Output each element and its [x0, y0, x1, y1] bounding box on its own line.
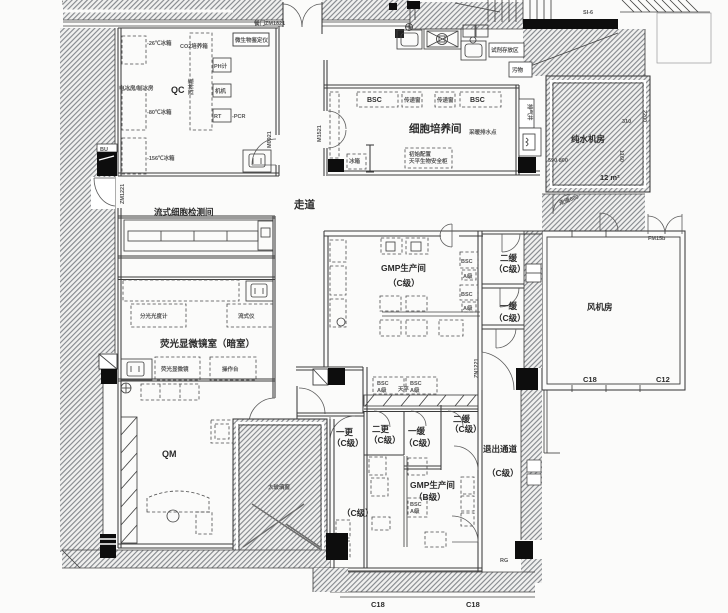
- svg-text:FM15b: FM15b: [648, 236, 666, 242]
- svg-text:GMP生产间: GMP生产间: [381, 263, 426, 273]
- svg-text:传递窗: 传递窗: [436, 96, 454, 104]
- svg-text:传递窗: 传递窗: [403, 96, 421, 104]
- svg-text:A级: A级: [463, 304, 473, 312]
- svg-text:（C级）: （C级）: [388, 278, 420, 288]
- svg-text:-156℃冰箱: -156℃冰箱: [147, 154, 175, 162]
- svg-text:（C级）: （C级）: [494, 313, 526, 323]
- svg-text:RG: RG: [500, 558, 508, 564]
- svg-text:（C级）: （C级）: [487, 468, 519, 478]
- svg-text:流式细胞检测间: 流式细胞检测间: [154, 207, 214, 217]
- svg-text:初始配置: 初始配置: [409, 150, 432, 158]
- svg-text:荧光显微镜室（暗室）: 荧光显微镜室（暗室）: [160, 338, 255, 350]
- svg-text:QM: QM: [162, 449, 177, 459]
- svg-text:纯水机房: 纯水机房: [571, 134, 605, 144]
- svg-text:流式仪: 流式仪: [238, 312, 255, 320]
- svg-text:A级: A级: [410, 386, 420, 394]
- svg-text:2200: 2200: [641, 110, 647, 122]
- svg-text:冰箱: 冰箱: [349, 157, 361, 165]
- svg-text:C18: C18: [466, 600, 480, 609]
- svg-text:A级: A级: [463, 272, 473, 280]
- svg-text:BSC: BSC: [470, 97, 485, 104]
- svg-text:走道: 走道: [293, 198, 315, 211]
- svg-text:天平生物安全柜: 天平生物安全柜: [409, 157, 448, 165]
- svg-text:PH计: PH计: [214, 62, 228, 70]
- svg-text:A级: A级: [410, 507, 420, 515]
- svg-text:（C级）: （C级）: [332, 438, 364, 448]
- svg-text:微生物鉴定仪: 微生物鉴定仪: [234, 36, 269, 44]
- svg-text:操作台: 操作台: [222, 365, 239, 373]
- svg-text:试剂存放区: 试剂存放区: [491, 46, 519, 54]
- svg-text:采暖排水点: 采暖排水点: [468, 128, 497, 136]
- svg-text:1160: 1160: [618, 150, 624, 162]
- svg-text:SI-6: SI-6: [583, 10, 593, 16]
- svg-text:RT: RT: [214, 114, 222, 120]
- svg-text:（C级）: （C级）: [450, 424, 482, 434]
- svg-text:ZM1221: ZM1221: [120, 184, 126, 204]
- svg-text:GMP生产间: GMP生产间: [410, 480, 455, 490]
- svg-text:M0921: M0921: [267, 131, 273, 148]
- svg-text:机机: 机机: [214, 87, 227, 95]
- svg-text:排气井: 排气井: [526, 104, 534, 121]
- svg-text:BSC: BSC: [367, 97, 382, 104]
- svg-text:（C级）: （C级）: [369, 435, 401, 445]
- svg-text:（C级）: （C级）: [404, 438, 436, 448]
- svg-text:-26℃冰箱: -26℃冰箱: [147, 39, 172, 47]
- svg-text:风机房: 风机房: [587, 302, 613, 312]
- svg-text:CO2培养箱: CO2培养箱: [180, 42, 208, 50]
- svg-text:C12: C12: [656, 375, 670, 384]
- svg-text:大玻璃窗: 大玻璃窗: [268, 483, 291, 491]
- svg-text:（C级）: （C级）: [342, 508, 374, 518]
- svg-text:BSC: BSC: [461, 292, 473, 298]
- svg-text:一缓: 一缓: [408, 426, 426, 436]
- svg-text:-PCR: -PCR: [232, 114, 245, 120]
- svg-text:QC: QC: [171, 85, 185, 95]
- svg-text:（C级）: （C级）: [494, 264, 526, 274]
- svg-text:污物: 污物: [512, 66, 524, 74]
- svg-text:BSC: BSC: [377, 381, 389, 387]
- svg-text:二缓: 二缓: [500, 253, 518, 263]
- svg-text:12 m²: 12 m²: [600, 173, 620, 182]
- svg-text:C18: C18: [583, 375, 597, 384]
- svg-text:一更: 一更: [336, 427, 354, 437]
- svg-text:一缓: 一缓: [500, 301, 518, 311]
- svg-text:C18: C18: [371, 600, 385, 609]
- svg-text:BSC: BSC: [410, 381, 422, 387]
- svg-text:BSC: BSC: [461, 259, 473, 265]
- svg-text:BSC: BSC: [410, 502, 422, 508]
- svg-text:西林瓶: 西林瓶: [187, 78, 195, 95]
- svg-text:ZN1221: ZN1221: [474, 358, 480, 378]
- svg-text:退出通道: 退出通道: [483, 444, 518, 454]
- svg-text:590 800: 590 800: [548, 158, 568, 164]
- svg-text:天平: 天平: [398, 386, 410, 393]
- svg-text:餐门ZM1821: 餐门ZM1821: [253, 19, 285, 27]
- svg-text:二缓: 二缓: [453, 414, 471, 424]
- svg-text:荧光显微镜: 荧光显微镜: [161, 365, 189, 373]
- svg-text:A级: A级: [377, 386, 387, 394]
- svg-text:细胞培养间: 细胞培养间: [409, 122, 462, 135]
- svg-text:分光光度计: 分光光度计: [140, 312, 168, 320]
- svg-text:二更: 二更: [372, 424, 390, 434]
- svg-text:（B级）: （B级）: [414, 492, 446, 502]
- svg-text:-80℃冰箱: -80℃冰箱: [147, 108, 172, 116]
- svg-text:310: 310: [622, 119, 631, 125]
- svg-text:电冰房/制冰房: 电冰房/制冰房: [119, 84, 154, 92]
- svg-text:M1521: M1521: [317, 125, 323, 142]
